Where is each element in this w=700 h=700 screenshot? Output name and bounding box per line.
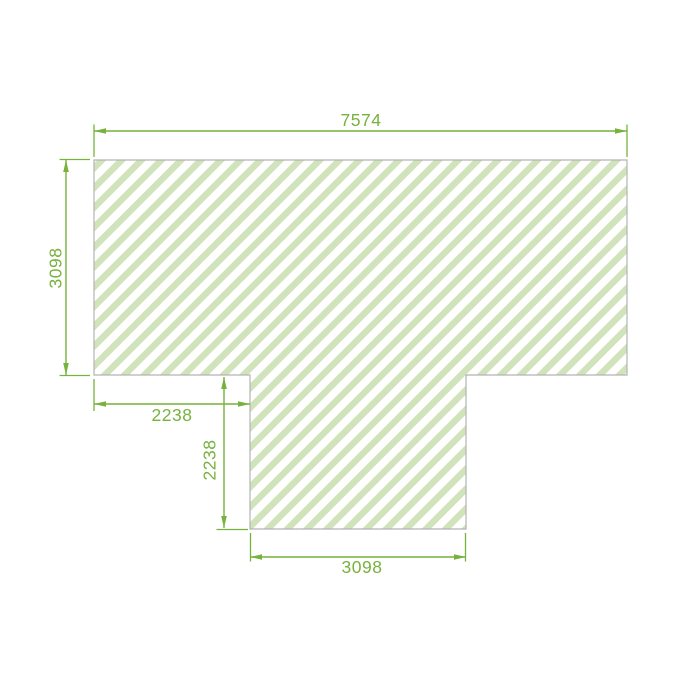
arrowhead-down (221, 516, 227, 528)
dimension-label-top-width: 7574 (341, 110, 382, 130)
arrowhead-left (94, 128, 106, 134)
dimension-label-stem-height: 2238 (200, 440, 220, 481)
dimension-top-width: 7574 (94, 110, 627, 157)
arrowhead-down (63, 363, 69, 375)
arrowhead-up (221, 377, 227, 389)
arrowhead-left (94, 401, 106, 407)
arrowhead-right (454, 554, 466, 560)
arrowhead-left (250, 554, 262, 560)
arrowhead-right (238, 401, 250, 407)
drawing-canvas: 7574 3098 2238 2238 (0, 0, 700, 700)
dimension-label-stem-width: 3098 (342, 557, 383, 577)
dimension-notch-width: 2238 (94, 379, 250, 425)
dimension-drawing: 7574 3098 2238 2238 (0, 0, 700, 700)
arrowhead-up (63, 160, 69, 172)
dimension-stem-width: 3098 (250, 533, 466, 577)
dimension-label-notch-width: 2238 (152, 405, 193, 425)
t-shape-panel (94, 160, 627, 529)
arrowhead-right (615, 128, 627, 134)
dimension-stem-height: 2238 (200, 377, 248, 530)
dimension-left-height: 3098 (46, 160, 90, 376)
dimension-label-left-height: 3098 (46, 248, 66, 289)
